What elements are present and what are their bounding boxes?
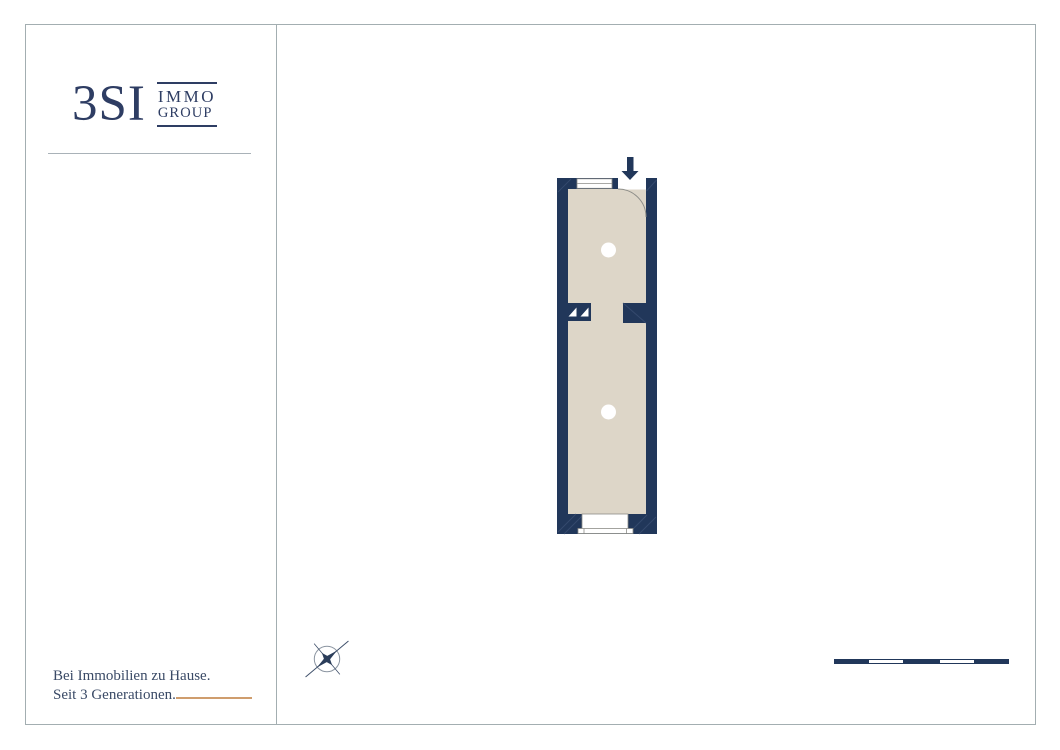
page-frame: 3SI IMMO GROUP Bei Immobilien zu Hause. … [25, 24, 1036, 725]
tagline-line1: Bei Immobilien zu Hause. [53, 667, 210, 686]
sidebar-divider [48, 153, 251, 154]
scale-bar-segment [975, 659, 1009, 664]
logo-subtext-line2: GROUP [158, 106, 216, 121]
floorplan-drawing [549, 151, 669, 541]
logo-subtext-line1: IMMO [158, 88, 216, 106]
scale-bar-segment [904, 659, 938, 664]
logo-wordmark: 3SI [72, 79, 146, 130]
scale-bar-segment [868, 659, 904, 664]
scale-bar-segment [834, 659, 868, 664]
window-bottom [578, 514, 633, 534]
compass-icon [301, 631, 353, 683]
scale-bar-segment [939, 659, 975, 664]
scale-bar [834, 659, 1009, 664]
ceiling-light-upper [601, 243, 616, 258]
tagline-line2: Seit 3 Generationen. [53, 686, 210, 705]
tagline-accent-line [176, 697, 252, 699]
brand-logo: 3SI IMMO GROUP [72, 79, 217, 130]
floor-area [568, 189, 646, 514]
entrance-arrow-icon [622, 157, 639, 180]
brand-tagline: Bei Immobilien zu Hause. Seit 3 Generati… [53, 667, 210, 705]
door-opening [618, 178, 646, 190]
ceiling-light-lower [601, 405, 616, 420]
logo-subtext: IMMO GROUP [157, 82, 217, 127]
window-top [577, 179, 612, 189]
sidebar: 3SI IMMO GROUP Bei Immobilien zu Hause. … [26, 25, 277, 724]
